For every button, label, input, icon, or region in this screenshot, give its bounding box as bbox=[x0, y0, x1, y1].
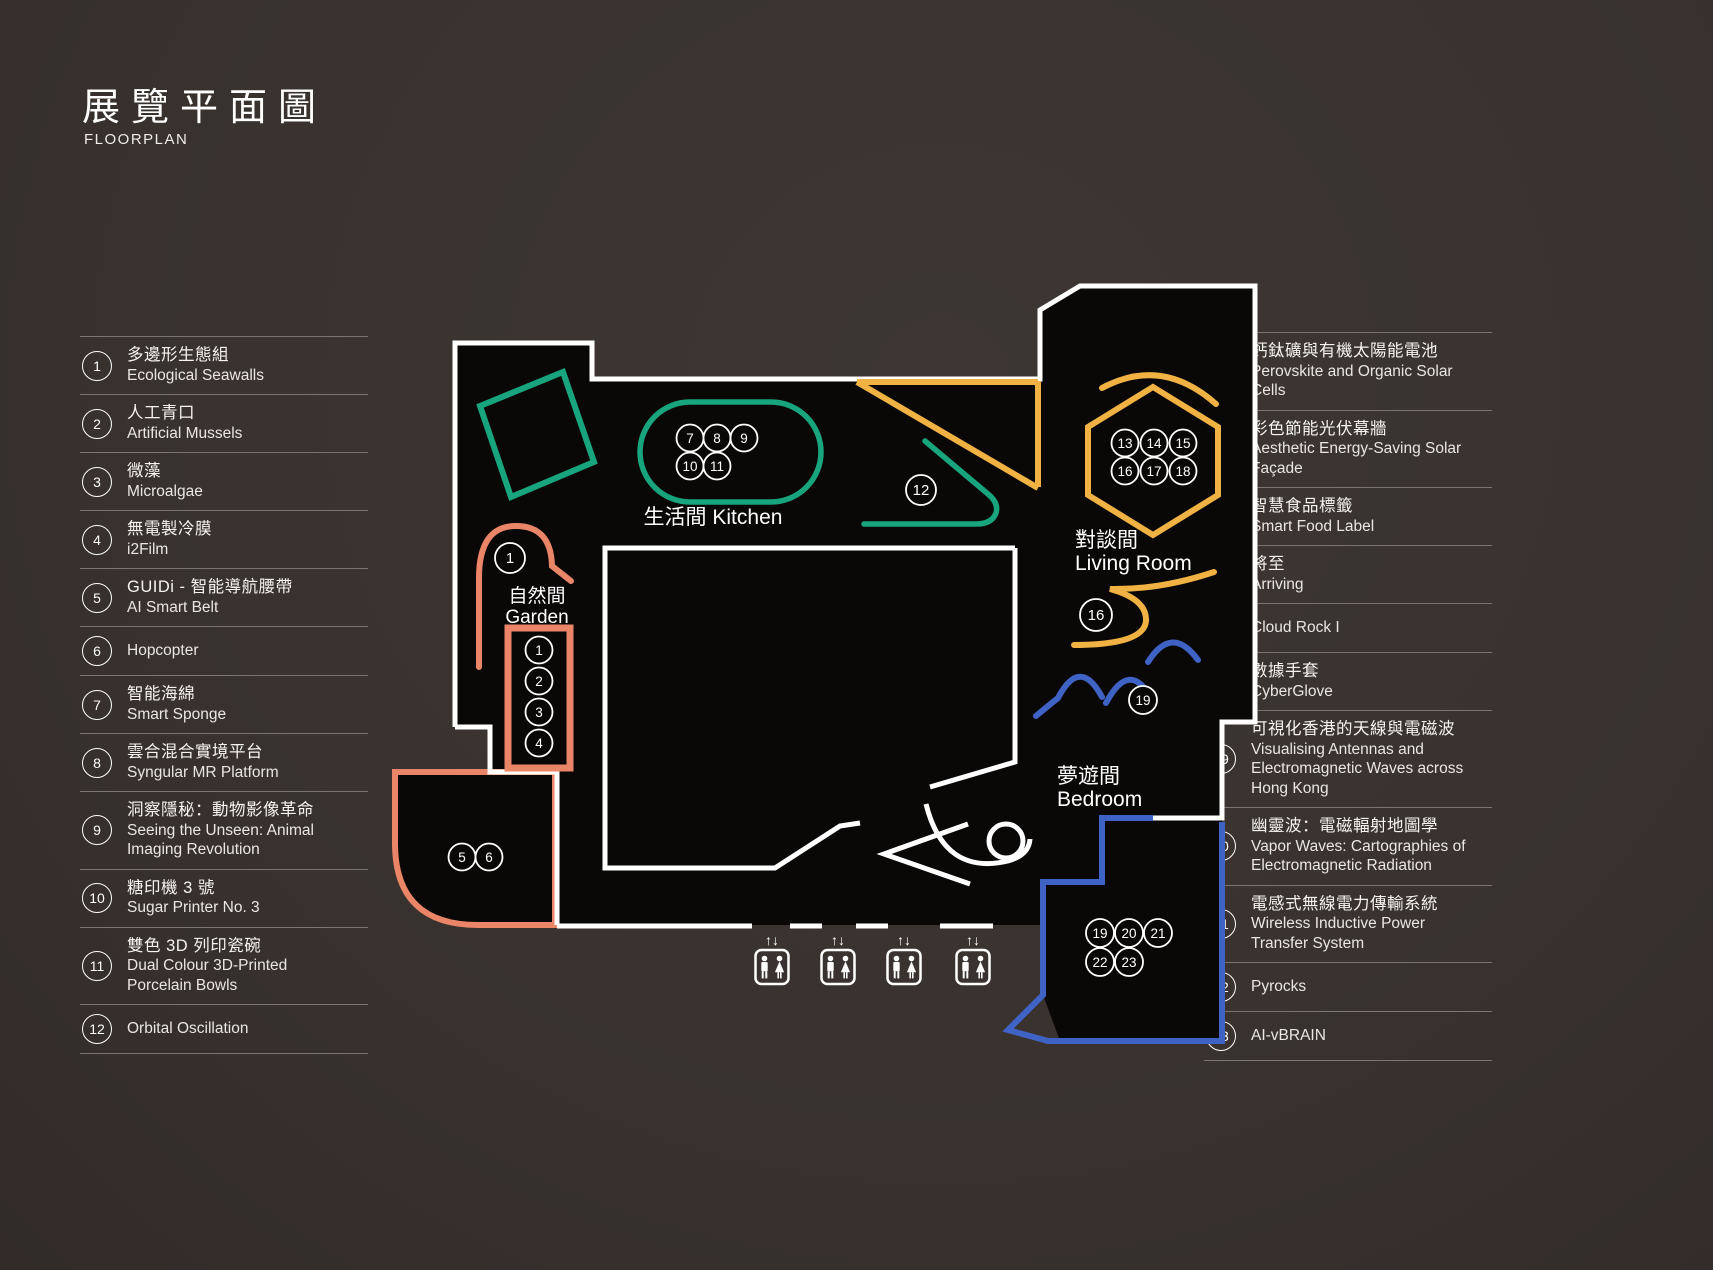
map-marker-number: 4 bbox=[535, 736, 543, 751]
map-marker-number: 1 bbox=[506, 550, 514, 567]
room-label-living-room-zh: 對談間 bbox=[1075, 529, 1138, 552]
map-marker-number: 6 bbox=[485, 850, 493, 865]
elevator-box bbox=[888, 950, 921, 984]
map-marker-number: 8 bbox=[713, 431, 721, 446]
map-marker-number: 1 bbox=[535, 643, 543, 658]
man-icon bbox=[761, 956, 767, 979]
man-icon bbox=[827, 956, 833, 979]
map-marker-number: 18 bbox=[1175, 464, 1190, 479]
map-marker-number: 3 bbox=[535, 705, 543, 720]
floorplan-map: 生活間 Kitchen自然間Garden對談間Living Room夢遊間Bed… bbox=[0, 0, 1713, 1270]
woman-icon bbox=[775, 956, 784, 979]
elevator-arrows-icon: ↑↓ bbox=[897, 932, 911, 948]
elevator-arrows-icon: ↑↓ bbox=[765, 932, 779, 948]
map-marker-number: 13 bbox=[1117, 436, 1132, 451]
map-marker-number: 14 bbox=[1146, 436, 1162, 451]
map-marker-number: 11 bbox=[710, 459, 724, 474]
workshop-quarter-room bbox=[395, 772, 555, 925]
map-marker-number: 16 bbox=[1117, 464, 1132, 479]
room-label-bedroom-zh: 夢遊間 bbox=[1057, 765, 1120, 788]
room-label-kitchen: 生活間 Kitchen bbox=[644, 506, 783, 529]
elevator-arrows-icon: ↑↓ bbox=[966, 932, 980, 948]
elevators: ↑↓↑↓↑↓↑↓ bbox=[756, 932, 990, 984]
elevator-icon: ↑↓ bbox=[957, 932, 990, 984]
map-marker-number: 19 bbox=[1092, 926, 1107, 941]
room-label-bedroom-en: Bedroom bbox=[1057, 788, 1142, 811]
elevator-icon: ↑↓ bbox=[756, 932, 789, 984]
woman-icon bbox=[841, 956, 850, 979]
map-marker-number: 23 bbox=[1121, 955, 1136, 970]
map-marker-number: 15 bbox=[1175, 436, 1190, 451]
elevator-box bbox=[822, 950, 855, 984]
room-label-living-room-en: Living Room bbox=[1075, 552, 1192, 575]
elevator-box bbox=[756, 950, 789, 984]
woman-icon bbox=[976, 956, 985, 979]
map-marker-number: 2 bbox=[535, 674, 543, 689]
woman-icon bbox=[907, 956, 916, 979]
man-icon bbox=[962, 956, 968, 979]
elevator-box bbox=[957, 950, 990, 984]
elevator-icon: ↑↓ bbox=[822, 932, 855, 984]
map-marker-number: 7 bbox=[686, 431, 694, 446]
elevator-icon: ↑↓ bbox=[888, 932, 921, 984]
map-marker-number: 9 bbox=[740, 431, 748, 446]
room-label-garden-en: Garden bbox=[505, 607, 568, 628]
map-marker-number: 22 bbox=[1092, 955, 1107, 970]
man-icon bbox=[893, 956, 899, 979]
room-label-garden-zh: 自然間 bbox=[508, 585, 565, 607]
map-marker-number: 16 bbox=[1088, 607, 1105, 624]
map-marker-number: 10 bbox=[682, 459, 697, 474]
floorplan-poster: 展覽平面圖 FLOORPLAN 1多邊形生態組Ecological Seawal… bbox=[0, 0, 1713, 1270]
map-marker-number: 5 bbox=[458, 850, 466, 865]
map-marker-number: 12 bbox=[913, 482, 930, 499]
map-marker-number: 17 bbox=[1146, 464, 1161, 479]
elevator-arrows-icon: ↑↓ bbox=[831, 932, 845, 948]
map-marker-number: 20 bbox=[1121, 926, 1136, 941]
map-marker-number: 21 bbox=[1150, 926, 1165, 941]
map-marker-number: 19 bbox=[1135, 693, 1150, 708]
